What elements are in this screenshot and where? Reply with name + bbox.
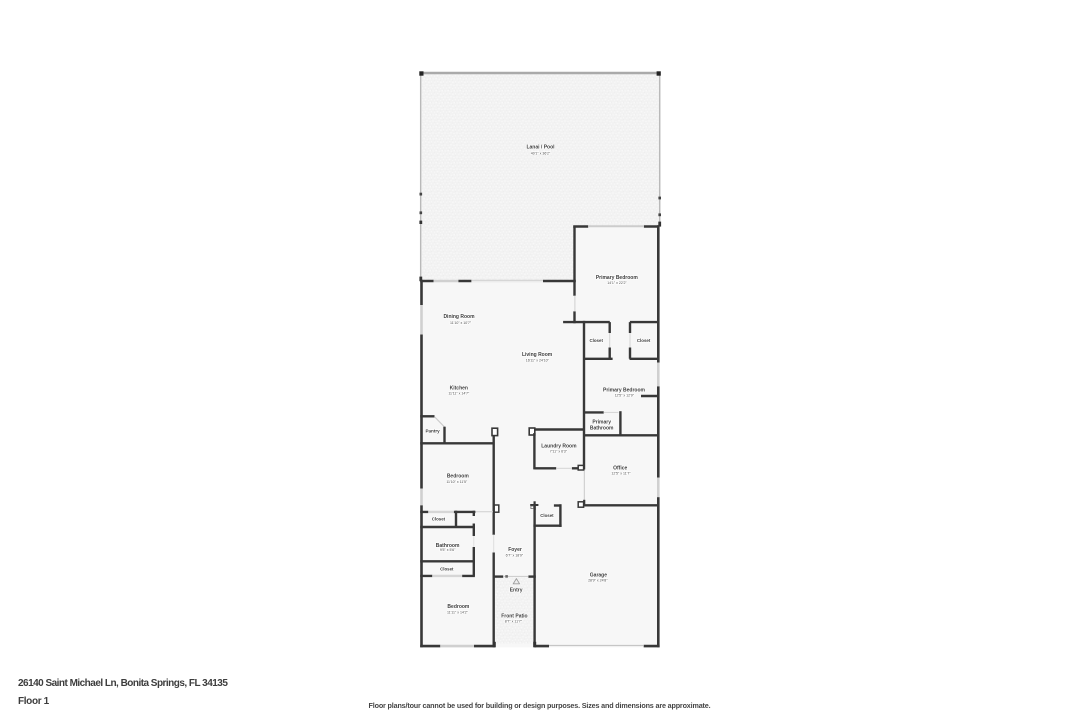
svg-text:7'11" x 6'3": 7'11" x 6'3" bbox=[550, 450, 568, 454]
svg-text:Office: Office bbox=[613, 465, 627, 471]
svg-text:Bedroom: Bedroom bbox=[447, 473, 470, 479]
svg-text:8'7" x 11'7": 8'7" x 11'7" bbox=[505, 620, 523, 624]
svg-text:Bathroom: Bathroom bbox=[590, 425, 614, 431]
svg-text:Garage: Garage bbox=[590, 572, 607, 578]
svg-text:Closet: Closet bbox=[432, 516, 446, 521]
svg-text:6'7" x 18'9": 6'7" x 18'9" bbox=[506, 553, 524, 557]
svg-text:Primary Bedroom: Primary Bedroom bbox=[596, 275, 639, 281]
svg-text:Closet: Closet bbox=[440, 567, 454, 572]
svg-text:16'11" x 24'10": 16'11" x 24'10" bbox=[526, 358, 550, 362]
svg-text:Entry: Entry bbox=[510, 587, 523, 593]
svg-text:Lanai / Pool: Lanai / Pool bbox=[526, 145, 555, 151]
svg-text:Bedroom: Bedroom bbox=[447, 604, 470, 610]
svg-text:11'10" x 10'7": 11'10" x 10'7" bbox=[450, 321, 472, 325]
svg-text:Dining Room: Dining Room bbox=[443, 314, 475, 320]
svg-text:11'10" x 11'5": 11'10" x 11'5" bbox=[446, 480, 468, 484]
svg-text:11'11" x 14'7": 11'11" x 14'7" bbox=[448, 392, 470, 396]
svg-text:11'11" x 14'2": 11'11" x 14'2" bbox=[447, 611, 469, 615]
svg-text:12'5" x 11'7": 12'5" x 11'7" bbox=[611, 471, 631, 475]
svg-text:Pantry: Pantry bbox=[425, 429, 440, 434]
svg-text:Foyer: Foyer bbox=[508, 547, 522, 553]
svg-text:9'5" x 5'6": 9'5" x 5'6" bbox=[440, 548, 456, 552]
svg-text:Closet: Closet bbox=[637, 338, 651, 343]
svg-text:Closet: Closet bbox=[589, 338, 603, 343]
svg-text:Living Room: Living Room bbox=[522, 352, 553, 358]
svg-text:14'1" x 22'2": 14'1" x 22'2" bbox=[607, 281, 627, 285]
svg-text:40'1" x 36'2": 40'1" x 36'2" bbox=[531, 151, 551, 155]
svg-text:Closet: Closet bbox=[540, 513, 554, 518]
svg-text:12'5" x 12'9": 12'5" x 12'9" bbox=[615, 394, 635, 398]
svg-text:28'9" x 24'8": 28'9" x 24'8" bbox=[588, 578, 608, 582]
svg-text:Front Patio: Front Patio bbox=[501, 614, 527, 620]
